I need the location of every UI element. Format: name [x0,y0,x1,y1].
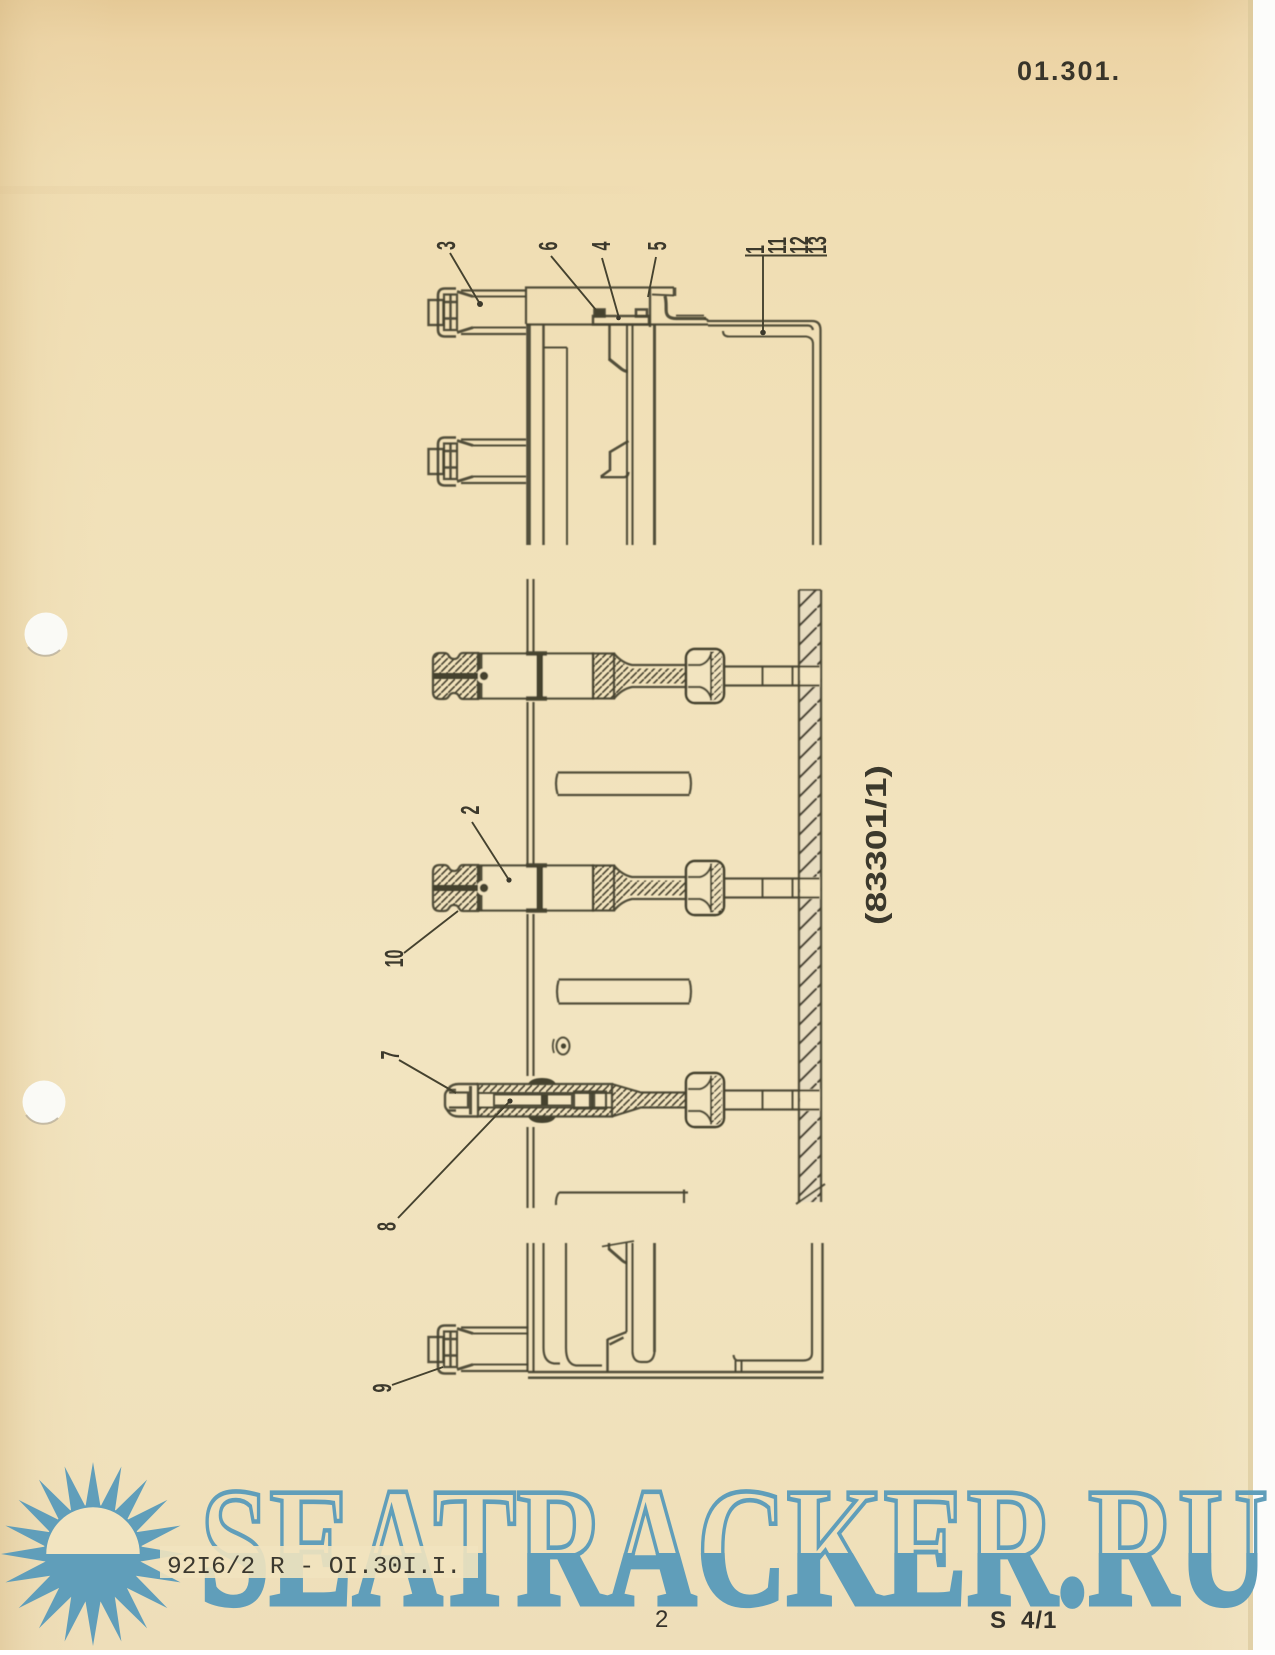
svg-text:2: 2 [456,806,485,815]
svg-text:5: 5 [643,241,672,250]
svg-text:13: 13 [803,236,832,254]
svg-text:(83301/1): (83301/1) [861,765,893,925]
svg-text:8: 8 [373,1222,402,1231]
svg-text:4: 4 [587,241,616,250]
svg-text:92I6/2 R - OI.30I.I.: 92I6/2 R - OI.30I.I. [167,1554,461,1581]
svg-text:9: 9 [368,1383,397,1392]
svg-text:4/1: 4/1 [1021,1607,1057,1634]
svg-text:2: 2 [655,1606,668,1633]
svg-text:6: 6 [534,241,563,250]
svg-text:S: S [990,1607,1006,1634]
svg-text:3: 3 [432,241,461,250]
svg-text:10: 10 [380,950,409,968]
svg-text:7: 7 [376,1051,405,1060]
svg-text:01.301.: 01.301. [1017,56,1121,86]
